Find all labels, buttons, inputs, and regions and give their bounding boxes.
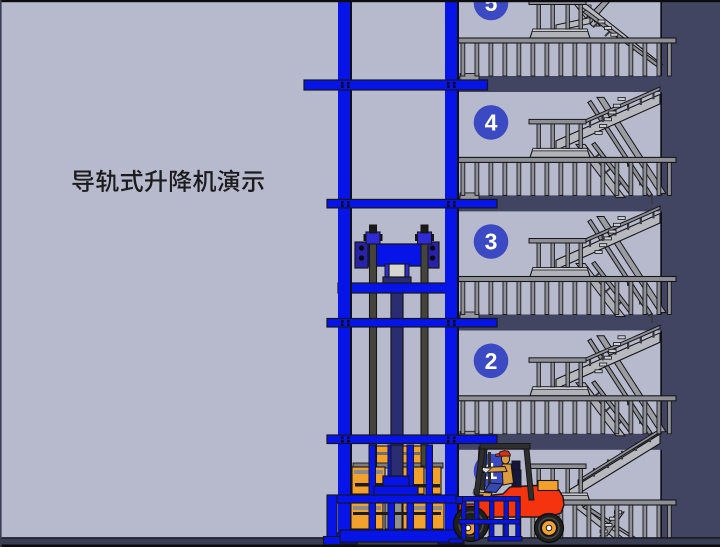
svg-text:2: 2 <box>485 348 498 374</box>
svg-text:3: 3 <box>485 229 498 255</box>
svg-text:4: 4 <box>485 109 498 135</box>
svg-text:5: 5 <box>485 0 498 16</box>
